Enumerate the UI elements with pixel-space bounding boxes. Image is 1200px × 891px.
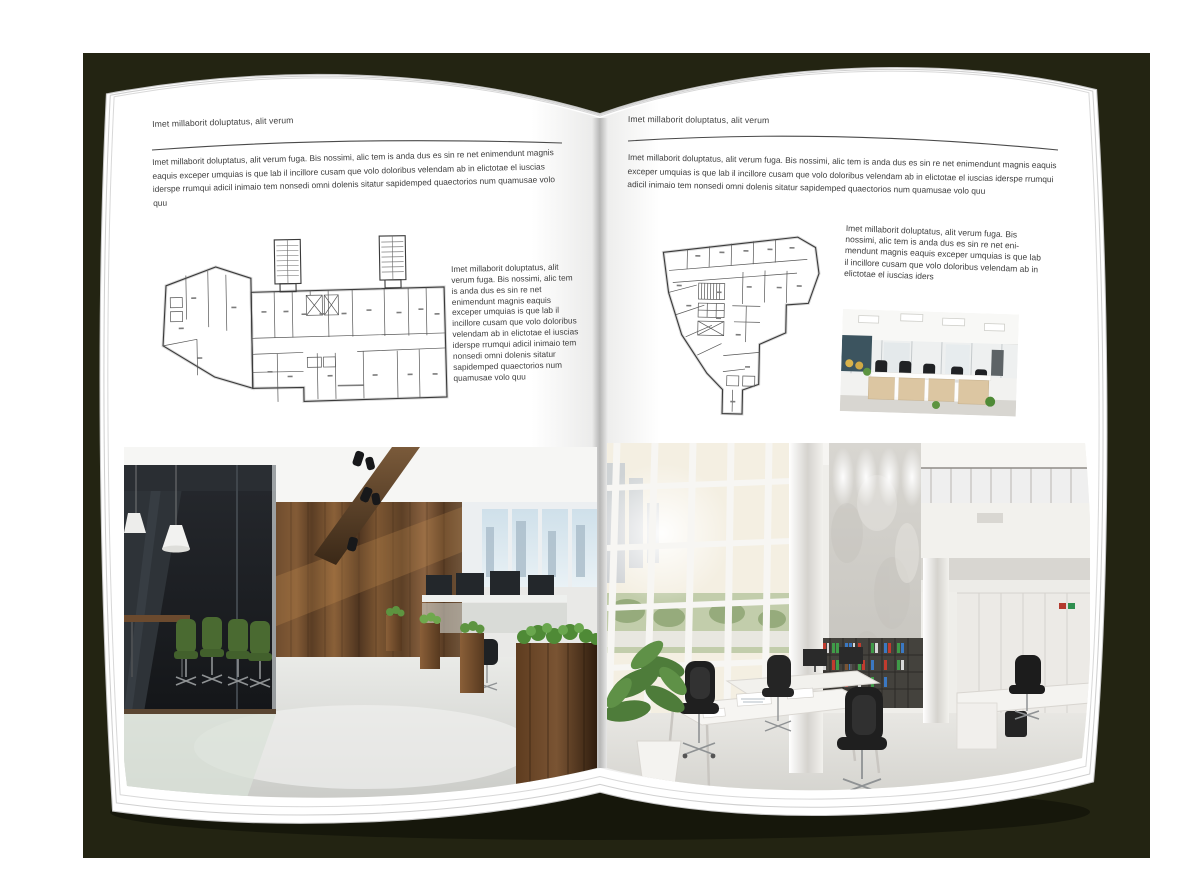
book-spread xyxy=(0,0,1200,891)
right-side-text: Imet millaborit doluptatus, alit verum f… xyxy=(844,223,1044,287)
photo-office-bright-loft xyxy=(592,443,1090,803)
right-intro-paragraph: Imet millaborit doluptatus, alit verum f… xyxy=(627,151,1066,200)
photo-office-small xyxy=(840,309,1019,416)
left-intro-paragraph: Imet millaborit doluptatus, alit verum f… xyxy=(152,146,569,211)
photo-office-dark-wood xyxy=(124,447,602,812)
magazine-mockup: Imet millaborit doluptatus, alit verum I… xyxy=(0,0,1200,891)
left-side-text: Imet millaborit doluptatus, alit verum f… xyxy=(451,261,580,383)
